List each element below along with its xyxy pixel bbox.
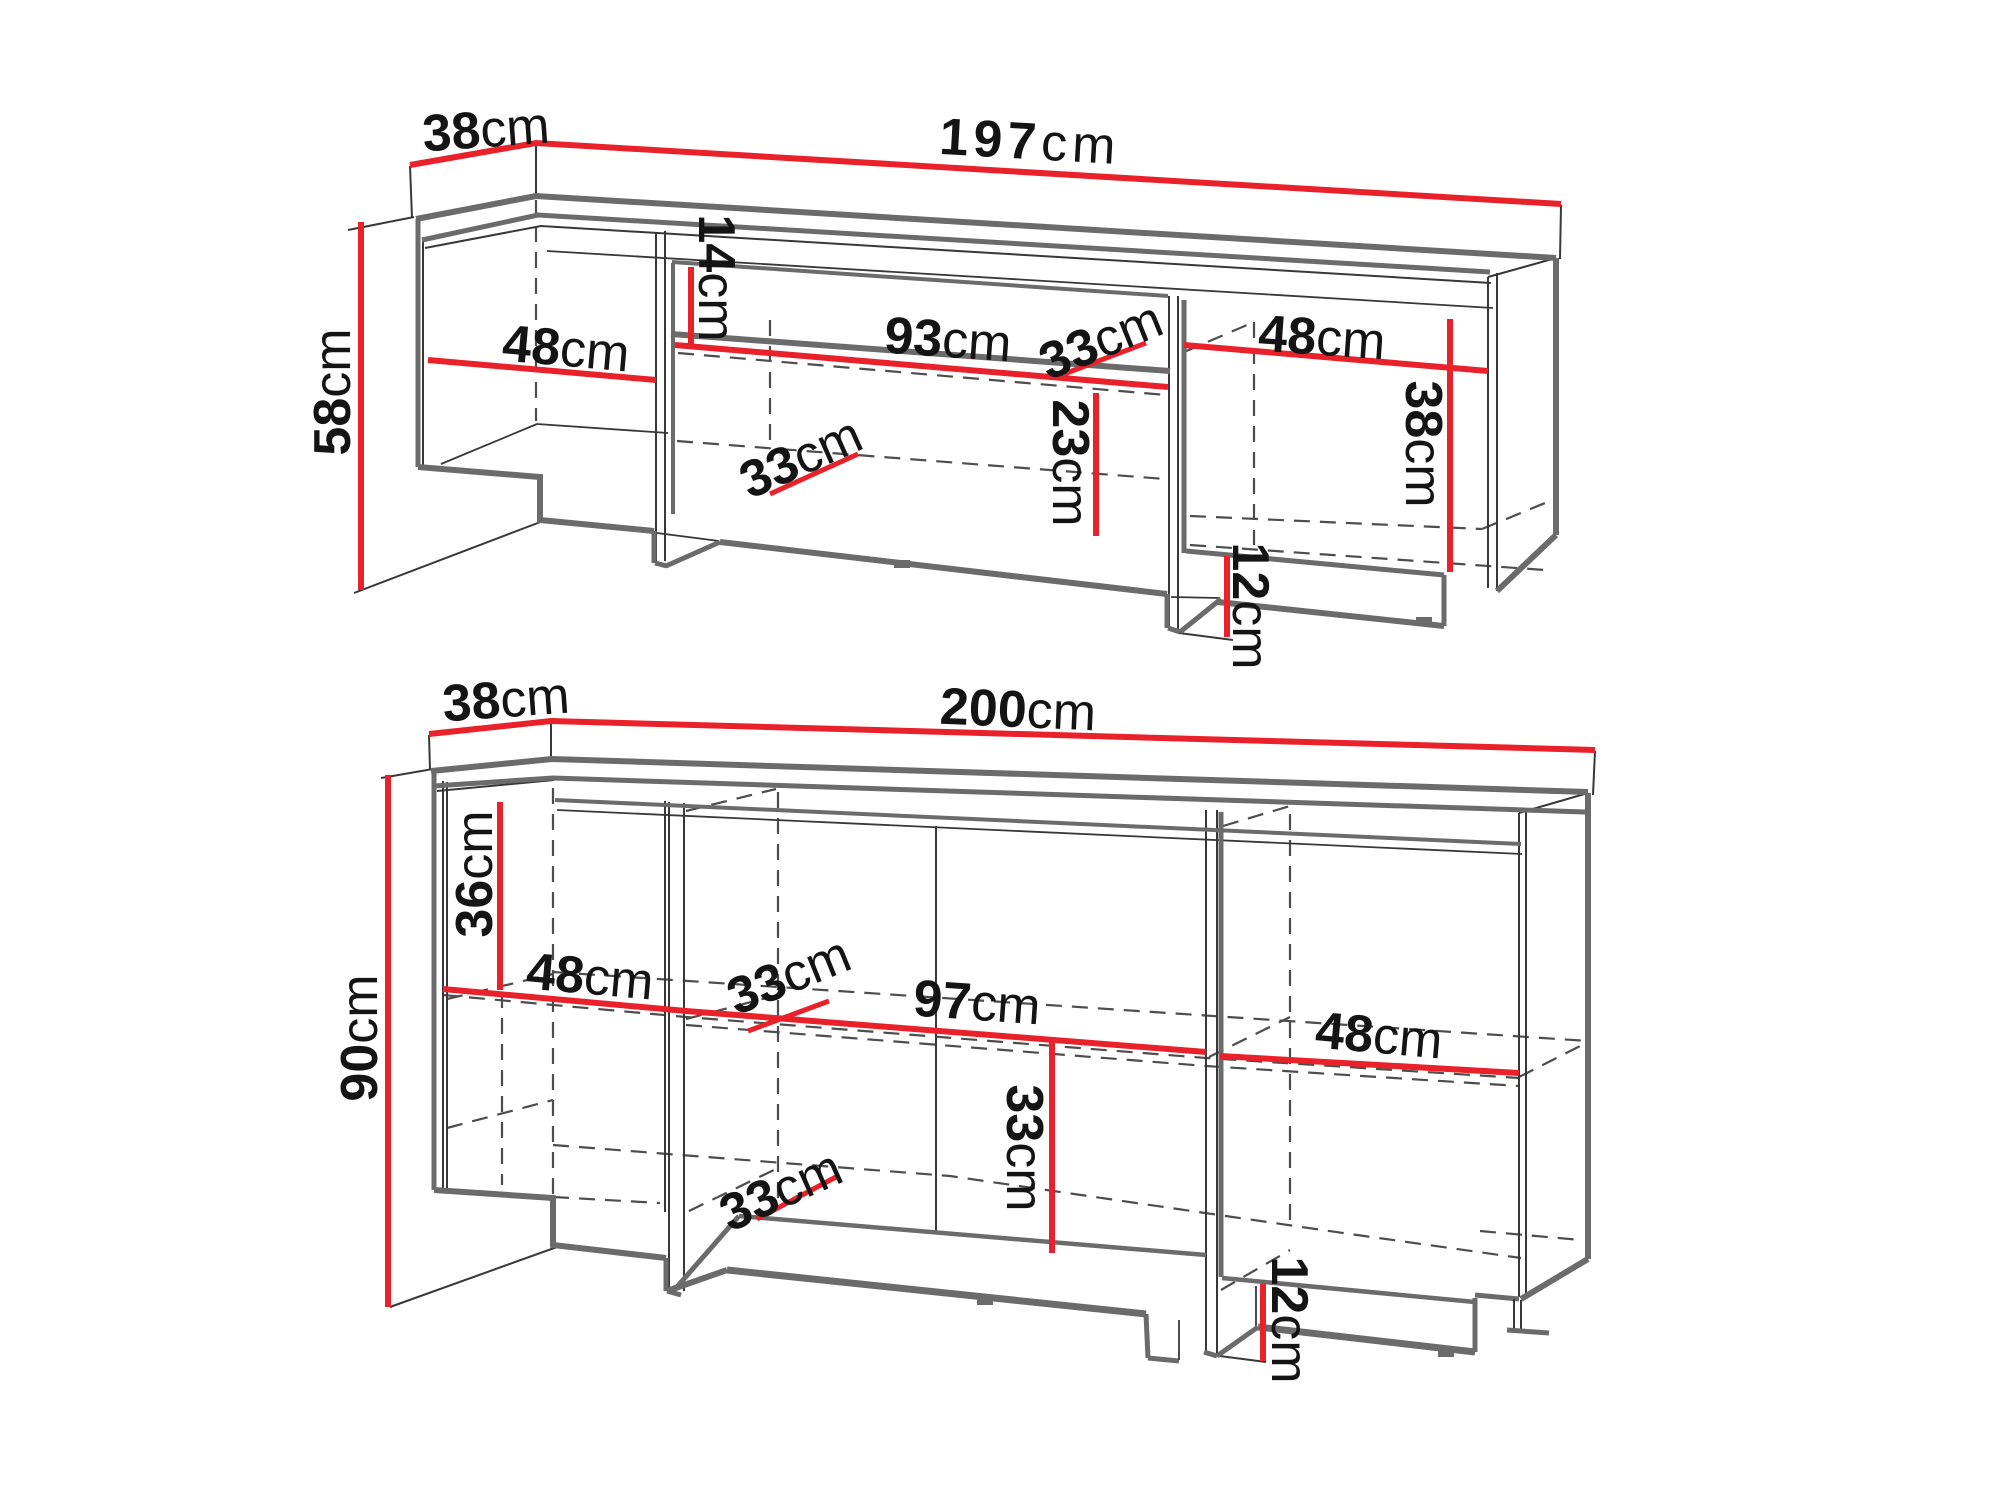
svg-text:97cm: 97cm bbox=[912, 970, 1043, 1037]
svg-text:38cm: 38cm bbox=[421, 97, 552, 164]
svg-text:38cm: 38cm bbox=[441, 667, 572, 734]
svg-text:197cm: 197cm bbox=[938, 108, 1122, 176]
svg-text:58cm: 58cm bbox=[304, 328, 362, 455]
svg-text:12cm: 12cm bbox=[1221, 542, 1279, 669]
svg-text:48cm: 48cm bbox=[524, 943, 656, 1012]
svg-text:33cm: 33cm bbox=[995, 1084, 1053, 1211]
svg-text:38cm: 38cm bbox=[1394, 380, 1452, 507]
svg-text:93cm: 93cm bbox=[883, 307, 1014, 374]
svg-text:23cm: 23cm bbox=[1041, 399, 1099, 526]
svg-text:36cm: 36cm bbox=[446, 810, 504, 937]
svg-text:48cm: 48cm bbox=[1257, 305, 1388, 372]
svg-text:200cm: 200cm bbox=[939, 678, 1097, 743]
svg-text:48cm: 48cm bbox=[500, 315, 632, 384]
svg-text:14cm: 14cm bbox=[687, 214, 745, 341]
svg-text:90cm: 90cm bbox=[331, 974, 389, 1101]
svg-text:12cm: 12cm bbox=[1260, 1256, 1318, 1383]
svg-text:48cm: 48cm bbox=[1313, 1002, 1445, 1071]
